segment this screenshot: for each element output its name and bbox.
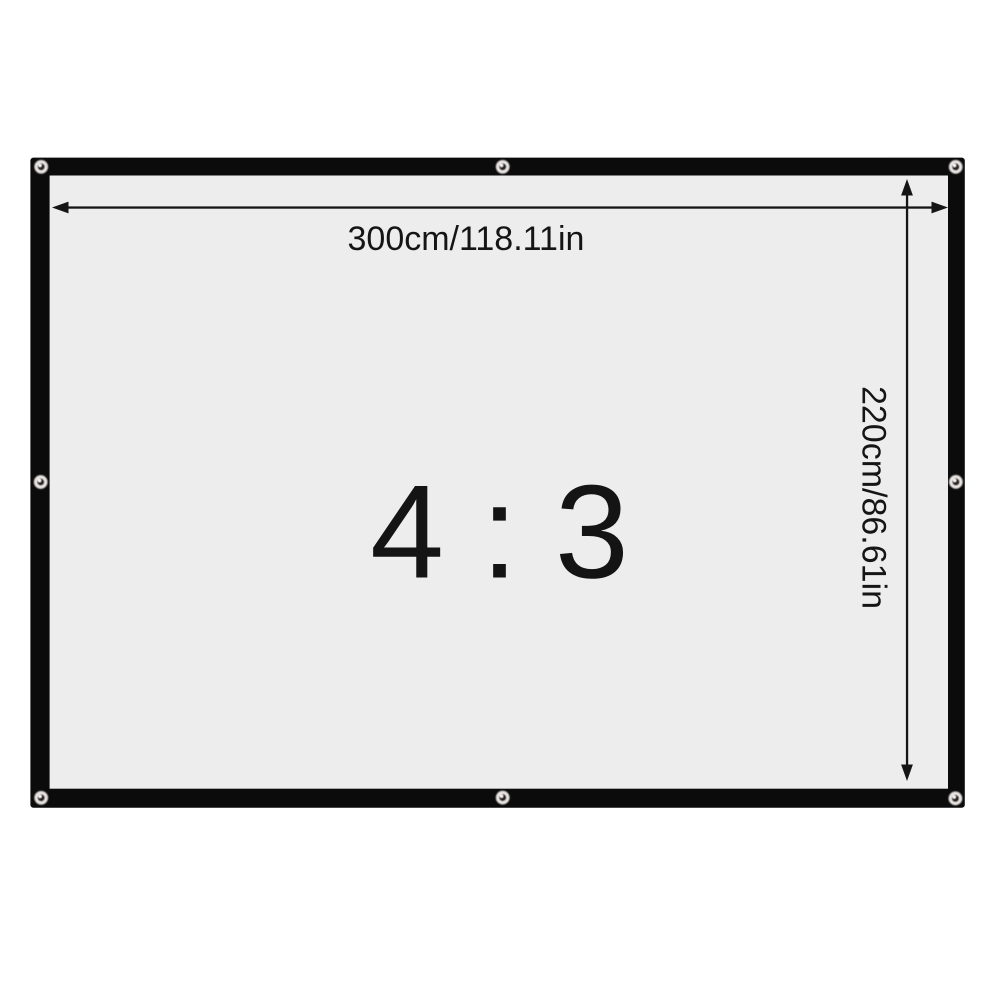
svg-text:4 : 3: 4 : 3 xyxy=(370,459,629,607)
svg-text:220cm/86.61in: 220cm/86.61in xyxy=(855,386,893,609)
svg-text:300cm/118.11in: 300cm/118.11in xyxy=(348,220,585,258)
